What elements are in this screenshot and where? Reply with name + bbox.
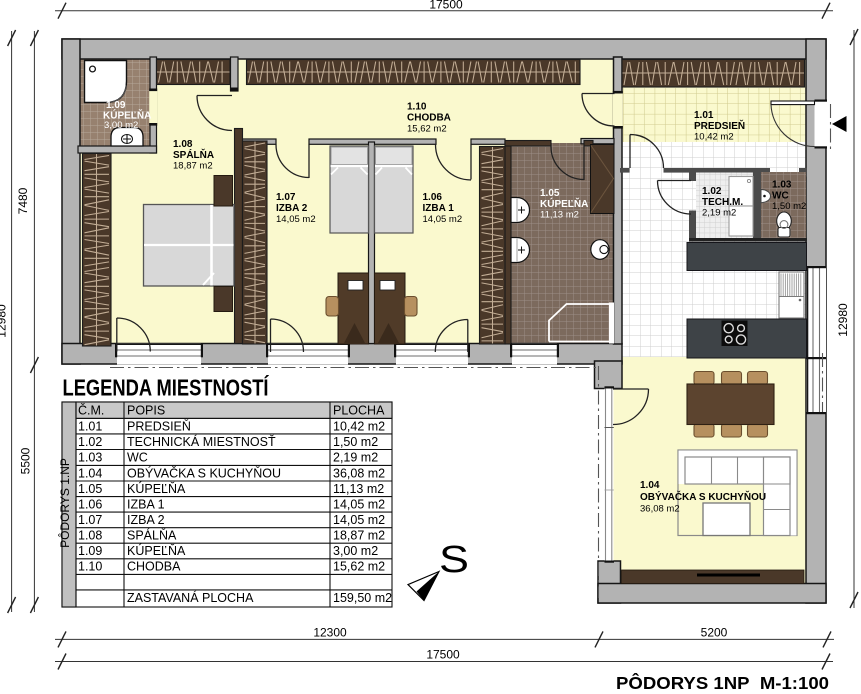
svg-text:11,13 m2: 11,13 m2 <box>540 210 579 221</box>
svg-text:14,05 m2: 14,05 m2 <box>333 498 385 512</box>
svg-text:1.04: 1.04 <box>640 480 660 491</box>
svg-text:1.02: 1.02 <box>702 186 722 197</box>
svg-text:1.07: 1.07 <box>276 192 296 203</box>
svg-text:Č.M.: Č.M. <box>78 403 104 418</box>
svg-text:1.02: 1.02 <box>78 435 102 449</box>
svg-text:CHODBA: CHODBA <box>127 560 181 574</box>
svg-text:1.07: 1.07 <box>78 513 102 527</box>
svg-text:PÔDORYS 1NP M-1:100: PÔDORYS 1NP M-1:100 <box>616 672 829 689</box>
svg-text:36,08 m2: 36,08 m2 <box>640 504 680 515</box>
svg-text:17500: 17500 <box>426 648 460 662</box>
svg-text:1.06: 1.06 <box>423 192 443 203</box>
svg-text:14,05 m2: 14,05 m2 <box>423 214 463 225</box>
svg-text:1.03: 1.03 <box>772 180 792 191</box>
svg-text:TECH.M.: TECH.M. <box>702 197 743 208</box>
svg-text:1.03: 1.03 <box>78 451 102 465</box>
svg-text:14,05 m2: 14,05 m2 <box>333 513 385 527</box>
svg-text:CHODBA: CHODBA <box>407 113 451 124</box>
svg-text:15,62 m2: 15,62 m2 <box>333 560 385 574</box>
svg-text:PREDSIEŇ: PREDSIEŇ <box>127 419 191 434</box>
svg-text:KÚPEĽŇA: KÚPEĽŇA <box>127 543 186 558</box>
svg-text:KÚPEĽŇA: KÚPEĽŇA <box>127 481 186 496</box>
svg-text:S: S <box>439 539 469 581</box>
svg-text:1.09: 1.09 <box>78 544 102 558</box>
svg-text:2,19 m2: 2,19 m2 <box>333 451 378 465</box>
svg-text:1.06: 1.06 <box>78 498 102 512</box>
svg-text:1.04: 1.04 <box>78 467 102 481</box>
svg-text:WC: WC <box>127 451 148 465</box>
svg-text:1,50 m2: 1,50 m2 <box>772 201 806 212</box>
svg-text:WC: WC <box>772 191 789 202</box>
svg-text:15,62 m2: 15,62 m2 <box>407 124 447 135</box>
svg-text:PÔDORYS 1.NP: PÔDORYS 1.NP <box>57 458 72 548</box>
svg-text:1.05: 1.05 <box>540 188 560 199</box>
svg-text:12980: 12980 <box>0 304 9 338</box>
svg-text:5500: 5500 <box>19 447 33 474</box>
svg-text:7480: 7480 <box>16 187 30 214</box>
svg-text:11,13 m2: 11,13 m2 <box>333 482 384 496</box>
svg-text:LEGENDA MIESTNOSTÍ: LEGENDA MIESTNOSTÍ <box>63 374 269 401</box>
svg-text:OBÝVAČKA S KUCHYŇOU: OBÝVAČKA S KUCHYŇOU <box>127 466 281 481</box>
svg-text:3,00 m2: 3,00 m2 <box>333 544 378 558</box>
svg-text:12980: 12980 <box>836 303 850 337</box>
svg-text:1.10: 1.10 <box>78 560 102 574</box>
svg-text:12300: 12300 <box>313 626 347 640</box>
svg-text:36,08 m2: 36,08 m2 <box>333 467 385 481</box>
svg-text:1.09: 1.09 <box>106 100 126 111</box>
svg-text:OBÝVAČKA S KUCHYŇOU: OBÝVAČKA S KUCHYŇOU <box>640 490 766 503</box>
svg-text:1.08: 1.08 <box>78 529 102 543</box>
svg-text:1.08: 1.08 <box>173 139 193 150</box>
svg-text:POPIS: POPIS <box>127 404 165 418</box>
svg-text:1.01: 1.01 <box>694 110 714 121</box>
svg-text:3,00 m2: 3,00 m2 <box>104 120 138 131</box>
svg-text:IZBA 2: IZBA 2 <box>127 513 165 527</box>
svg-text:PLOCHA: PLOCHA <box>333 404 385 418</box>
svg-text:TECHNICKÁ MIESTNOSŤ: TECHNICKÁ MIESTNOSŤ <box>127 434 276 449</box>
svg-text:5200: 5200 <box>701 626 728 640</box>
svg-text:SPÁLŇA: SPÁLŇA <box>173 148 214 161</box>
svg-text:IZBA 1: IZBA 1 <box>423 203 455 214</box>
svg-text:14,05 m2: 14,05 m2 <box>276 214 316 225</box>
svg-text:1,50 m2: 1,50 m2 <box>333 435 378 449</box>
svg-text:1.10: 1.10 <box>407 102 427 113</box>
svg-text:18,87 m2: 18,87 m2 <box>173 161 213 172</box>
svg-text:2,19 m2: 2,19 m2 <box>702 208 736 219</box>
svg-text:PREDSIEŇ: PREDSIEŇ <box>694 119 745 132</box>
svg-text:1.05: 1.05 <box>78 482 102 496</box>
svg-text:IZBA 1: IZBA 1 <box>127 498 165 512</box>
svg-text:10,42 m2: 10,42 m2 <box>694 132 734 143</box>
svg-text:SPÁLŇA: SPÁLŇA <box>127 528 177 543</box>
svg-text:18,87 m2: 18,87 m2 <box>333 529 385 543</box>
svg-text:159,50 m2: 159,50 m2 <box>333 591 392 605</box>
svg-text:10,42 m2: 10,42 m2 <box>333 420 385 434</box>
svg-text:IZBA 2: IZBA 2 <box>276 203 308 214</box>
svg-text:ZASTAVANÁ PLOCHA: ZASTAVANÁ PLOCHA <box>127 590 254 605</box>
svg-text:KÚPEĽŇA: KÚPEĽŇA <box>540 197 588 210</box>
svg-text:1.01: 1.01 <box>78 420 102 434</box>
svg-text:17500: 17500 <box>429 0 463 12</box>
